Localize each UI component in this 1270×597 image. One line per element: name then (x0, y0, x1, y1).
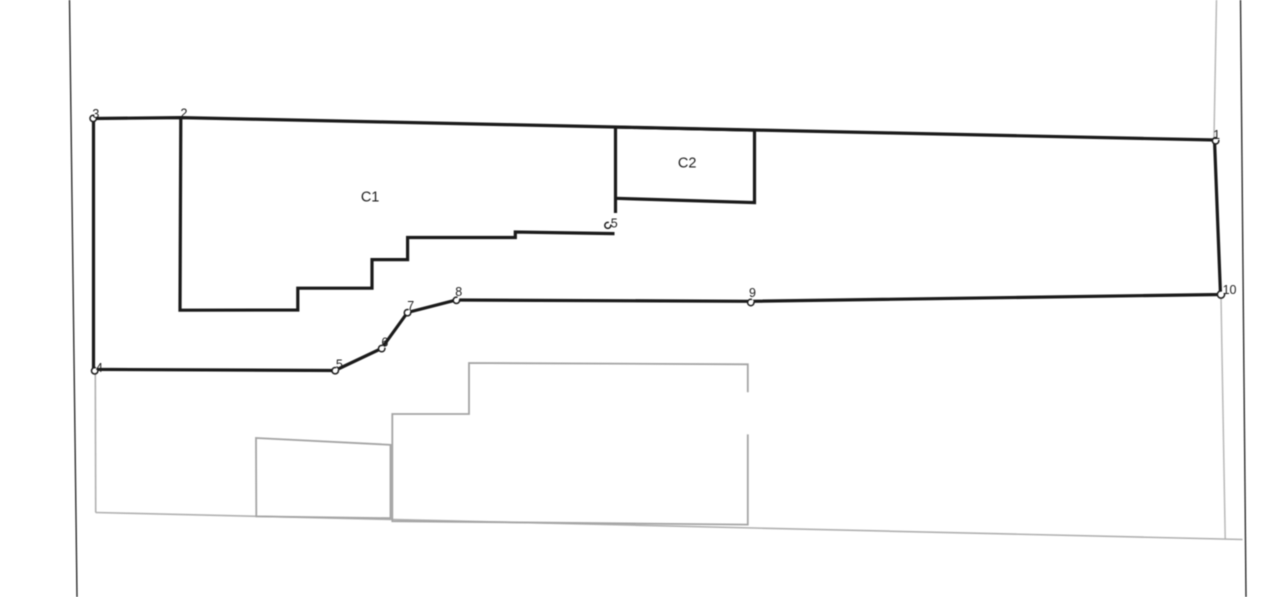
svg-text:10: 10 (1223, 283, 1237, 297)
svg-text:6: 6 (381, 336, 388, 350)
svg-text:3: 3 (92, 107, 99, 121)
svg-text:C2: C2 (678, 155, 697, 171)
svg-text:9: 9 (749, 286, 756, 300)
svg-text:1: 1 (1213, 128, 1220, 142)
svg-text:5: 5 (336, 358, 343, 372)
svg-text:7: 7 (407, 299, 414, 313)
svg-text:2: 2 (181, 106, 188, 120)
svg-text:5: 5 (611, 217, 618, 231)
svg-text:C1: C1 (361, 189, 380, 205)
svg-text:4: 4 (96, 361, 103, 375)
svg-text:8: 8 (455, 285, 462, 299)
